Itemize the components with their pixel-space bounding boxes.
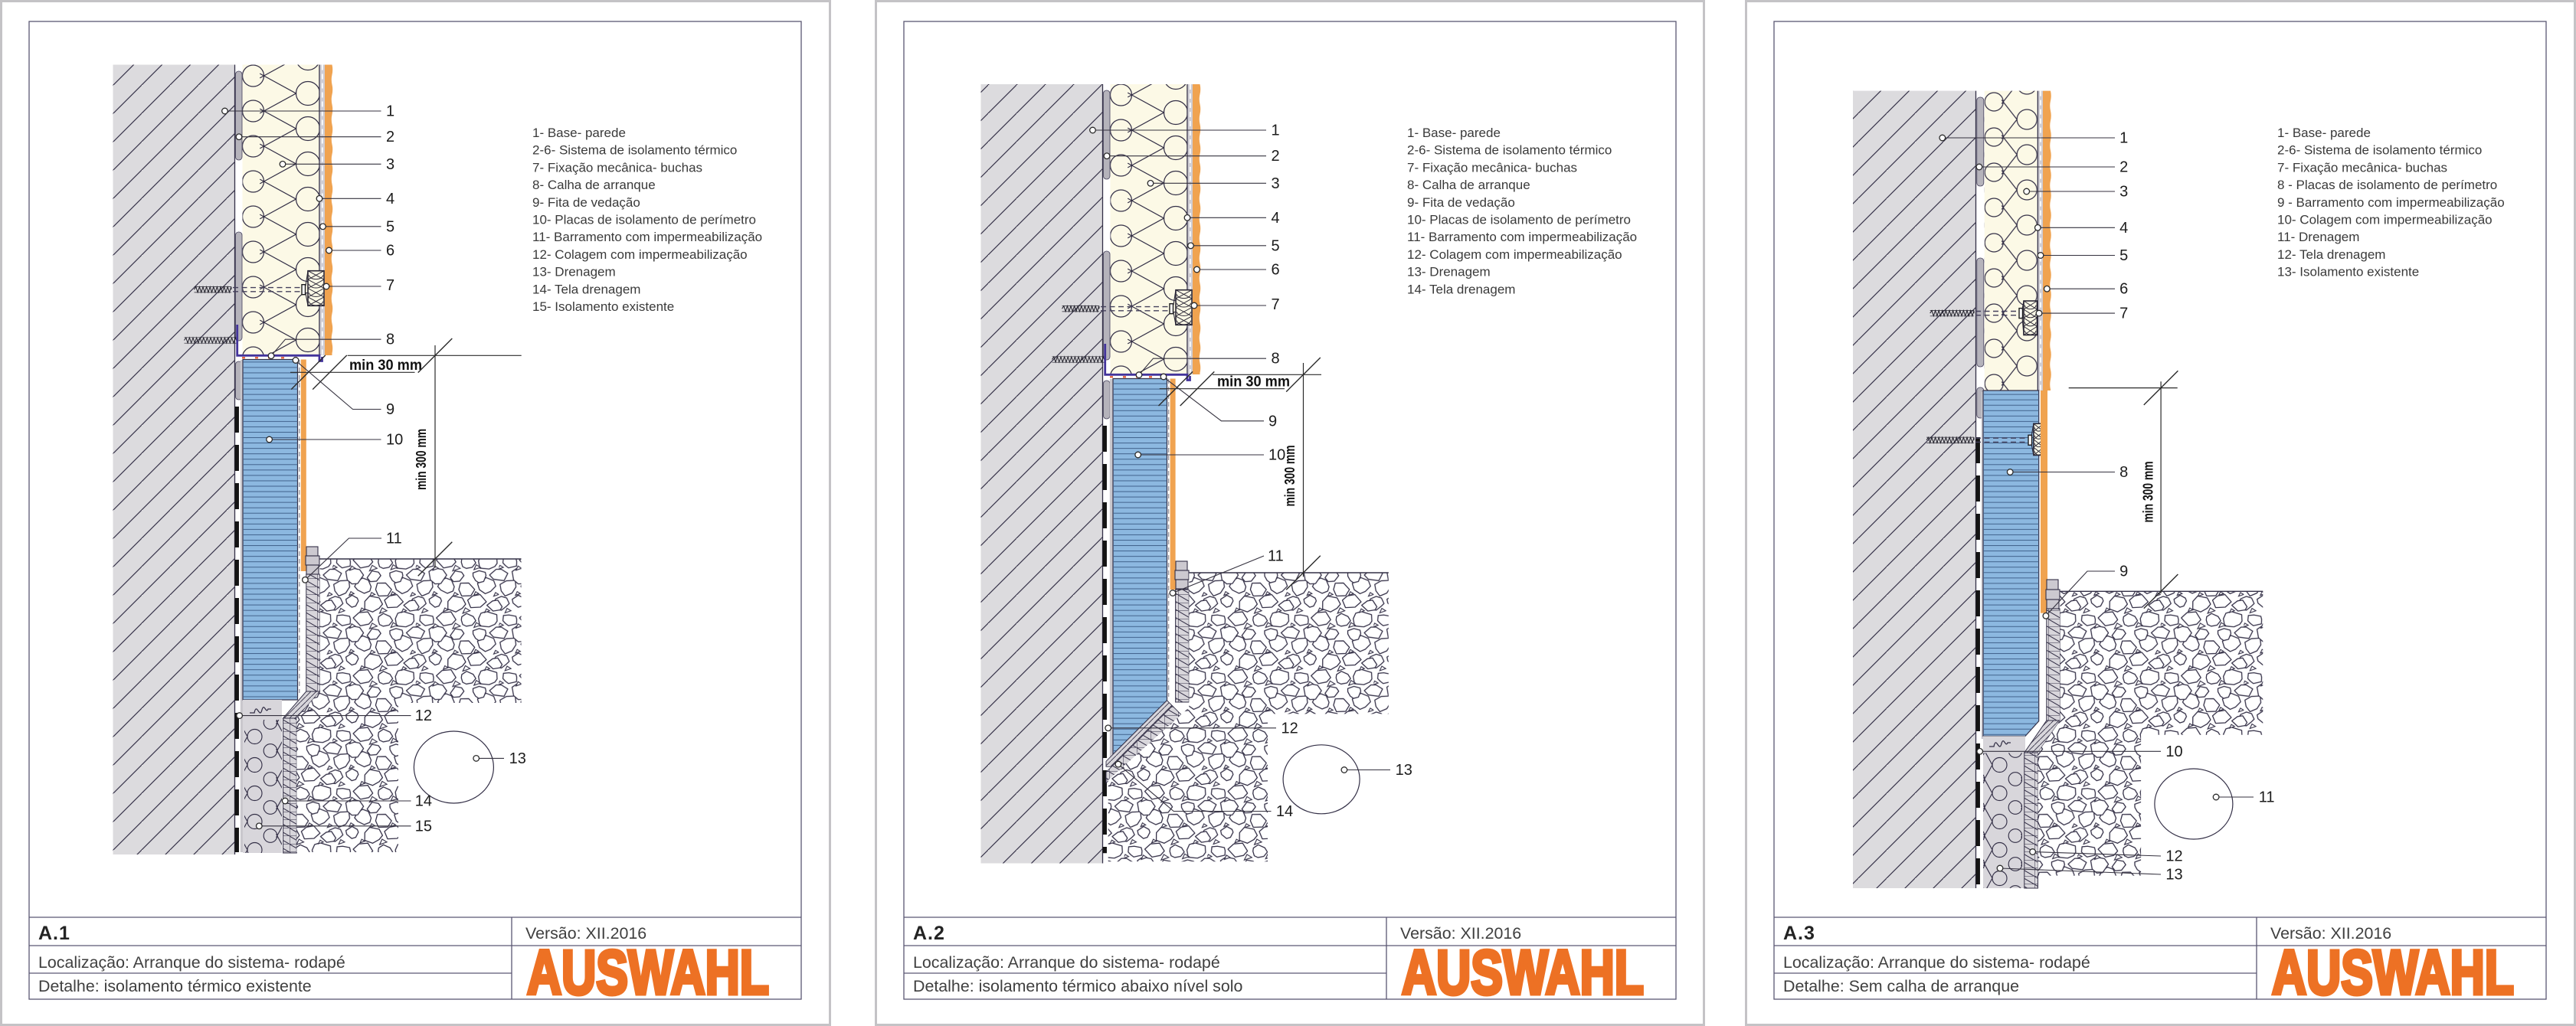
- svg-text:14: 14: [1276, 803, 1293, 820]
- svg-text:1: 1: [2119, 130, 2128, 147]
- svg-text:10- Placas de isolamento de pe: 10- Placas de isolamento de perímetro: [532, 213, 756, 227]
- svg-text:12- Colagem com impermeabiliza: 12- Colagem com impermeabilização: [1407, 247, 1622, 262]
- svg-text:4: 4: [386, 191, 394, 207]
- svg-text:11: 11: [2259, 789, 2275, 806]
- svg-text:1- Base- parede: 1- Base- parede: [532, 126, 626, 140]
- svg-text:11- Barramento com impermeabil: 11- Barramento com impermeabilização: [532, 230, 762, 244]
- svg-text:A.1: A.1: [38, 923, 70, 944]
- svg-text:2-6- Sistema de isolamento tér: 2-6- Sistema de isolamento térmico: [1407, 143, 1612, 158]
- svg-text:2: 2: [1272, 148, 1280, 165]
- svg-text:8- Calha de arranque: 8- Calha de arranque: [532, 178, 656, 192]
- svg-text:7- Fixação mecânica- buchas: 7- Fixação mecânica- buchas: [532, 160, 702, 175]
- svg-text:12- Colagem com impermeabiliza: 12- Colagem com impermeabilização: [532, 247, 748, 262]
- svg-text:8: 8: [386, 332, 394, 348]
- svg-text:7: 7: [386, 277, 394, 294]
- svg-text:13: 13: [509, 750, 526, 767]
- svg-text:13- Drenagem: 13- Drenagem: [1407, 265, 1491, 279]
- svg-text:9- Fita de vedação: 9- Fita de vedação: [532, 195, 640, 210]
- svg-text:11- Barramento com impermeabil: 11- Barramento com impermeabilização: [1407, 230, 1637, 244]
- svg-text:2: 2: [2119, 159, 2128, 176]
- svg-text:min 300 mm: min 300 mm: [414, 429, 429, 490]
- svg-text:12: 12: [2165, 848, 2182, 865]
- svg-text:15: 15: [415, 818, 432, 835]
- svg-text:7- Fixação mecânica- buchas: 7- Fixação mecânica- buchas: [1407, 160, 1577, 175]
- svg-text:10: 10: [386, 432, 403, 449]
- svg-text:13- Drenagem: 13- Drenagem: [532, 265, 616, 279]
- svg-text:min 300 mm: min 300 mm: [2140, 462, 2155, 523]
- svg-text:14- Tela drenagem: 14- Tela drenagem: [532, 282, 640, 296]
- svg-text:Localização: Arranque do siste: Localização: Arranque do sistema- rodapé: [913, 953, 1220, 972]
- svg-text:1- Base- parede: 1- Base- parede: [2277, 126, 2371, 140]
- svg-text:Localização: Arranque do siste: Localização: Arranque do sistema- rodapé: [1783, 953, 2090, 972]
- svg-text:9- Fita de vedação: 9- Fita de vedação: [1407, 195, 1515, 210]
- svg-text:9: 9: [1268, 413, 1277, 430]
- svg-text:6: 6: [386, 243, 394, 260]
- svg-text:min 30 mm: min 30 mm: [349, 358, 422, 374]
- svg-text:14: 14: [415, 793, 432, 810]
- svg-text:12- Tela drenagem: 12- Tela drenagem: [2277, 247, 2385, 262]
- svg-text:7: 7: [1272, 296, 1280, 313]
- svg-text:Detalhe: isolamento térmico ex: Detalhe: isolamento térmico existente: [38, 977, 312, 995]
- svg-text:11: 11: [1268, 548, 1284, 565]
- svg-text:9: 9: [386, 401, 394, 418]
- svg-text:4: 4: [2119, 220, 2128, 237]
- svg-text:9 - Barramento com impermeabil: 9 - Barramento com impermeabilização: [2277, 195, 2505, 210]
- svg-text:3: 3: [1272, 175, 1280, 192]
- svg-text:3: 3: [2119, 184, 2128, 201]
- svg-text:8: 8: [1272, 351, 1280, 368]
- svg-text:8 - Placas de isolamento de pe: 8 - Placas de isolamento de perímetro: [2277, 178, 2497, 192]
- svg-text:11: 11: [386, 531, 402, 547]
- svg-text:Localização: Arranque do siste: Localização: Arranque do sistema- rodapé: [38, 953, 345, 972]
- svg-text:2-6- Sistema de isolamento tér: 2-6- Sistema de isolamento térmico: [532, 143, 737, 158]
- svg-text:A.3: A.3: [1783, 923, 1815, 944]
- svg-text:14- Tela drenagem: 14- Tela drenagem: [1407, 282, 1515, 296]
- svg-text:2: 2: [386, 129, 394, 145]
- svg-text:13- Isolamento existente: 13- Isolamento existente: [2277, 265, 2419, 279]
- svg-text:5: 5: [386, 218, 394, 235]
- svg-text:1: 1: [386, 103, 394, 120]
- svg-text:AUSWAHL: AUSWAHL: [2272, 938, 2514, 1008]
- svg-text:6: 6: [1272, 262, 1280, 279]
- svg-text:10: 10: [2165, 743, 2182, 760]
- svg-text:13: 13: [1396, 762, 1412, 779]
- svg-text:9: 9: [2119, 564, 2128, 580]
- svg-text:2-6- Sistema de isolamento tér: 2-6- Sistema de isolamento térmico: [2277, 143, 2482, 158]
- svg-text:min 30 mm: min 30 mm: [1217, 374, 1290, 390]
- svg-text:10- Placas de isolamento de pe: 10- Placas de isolamento de perímetro: [1407, 213, 1631, 227]
- svg-text:12: 12: [1281, 720, 1298, 737]
- svg-text:7: 7: [2119, 306, 2128, 322]
- svg-text:5: 5: [2119, 247, 2128, 264]
- svg-text:1: 1: [1272, 123, 1280, 139]
- svg-text:12: 12: [415, 707, 432, 724]
- svg-text:7- Fixação mecânica- buchas: 7- Fixação mecânica- buchas: [2277, 160, 2447, 175]
- svg-text:8: 8: [2119, 464, 2128, 481]
- svg-text:10: 10: [1268, 447, 1285, 464]
- svg-text:AUSWAHL: AUSWAHL: [1402, 938, 1644, 1008]
- svg-text:11- Drenagem: 11- Drenagem: [2277, 230, 2359, 244]
- svg-text:1- Base- parede: 1- Base- parede: [1407, 126, 1501, 140]
- svg-text:8- Calha de arranque: 8- Calha de arranque: [1407, 178, 1530, 192]
- svg-text:AUSWAHL: AUSWAHL: [527, 938, 769, 1008]
- svg-text:4: 4: [1272, 210, 1280, 227]
- svg-text:A.2: A.2: [913, 923, 945, 944]
- svg-text:3: 3: [386, 156, 394, 173]
- svg-text:5: 5: [1272, 237, 1280, 254]
- svg-text:6: 6: [2119, 281, 2128, 298]
- svg-text:15- Isolamento existente: 15- Isolamento existente: [532, 299, 674, 314]
- svg-text:10- Colagem com impermeabiliza: 10- Colagem com impermeabilização: [2277, 213, 2493, 227]
- svg-text:13: 13: [2165, 867, 2182, 884]
- svg-text:Detalhe: isolamento térmico ab: Detalhe: isolamento térmico abaixo nível…: [913, 977, 1242, 995]
- svg-text:Detalhe: Sem calha de arranque: Detalhe: Sem calha de arranque: [1783, 977, 2019, 995]
